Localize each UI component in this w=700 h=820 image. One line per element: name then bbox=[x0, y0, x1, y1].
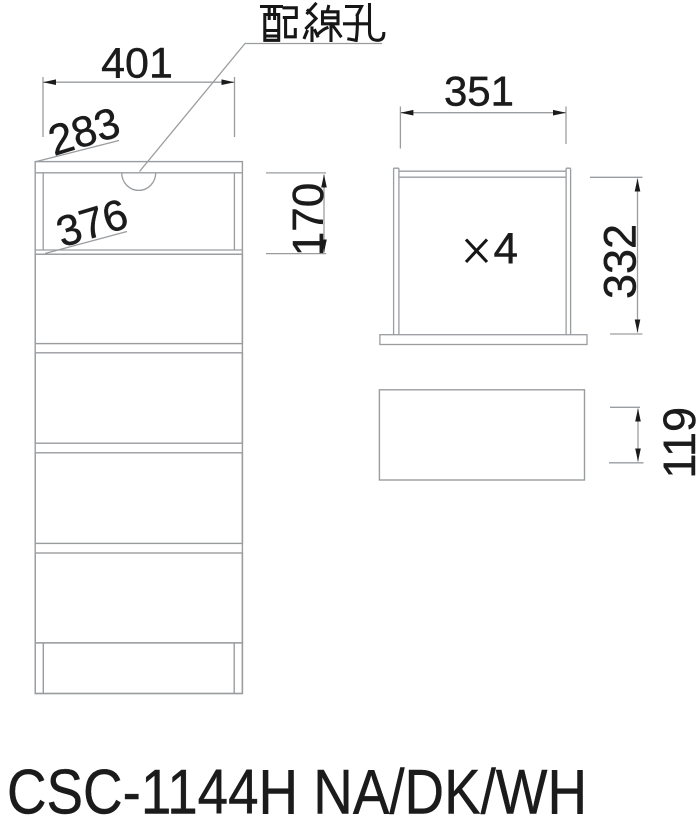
svg-text:401: 401 bbox=[101, 40, 173, 88]
svg-text:4: 4 bbox=[494, 225, 518, 274]
svg-text:351: 351 bbox=[444, 68, 514, 115]
svg-text:332: 332 bbox=[595, 224, 646, 299]
svg-text:170: 170 bbox=[284, 183, 333, 256]
svg-text:CSC-1144H NA/DK/WH: CSC-1144H NA/DK/WH bbox=[7, 758, 587, 820]
svg-text:119: 119 bbox=[654, 407, 700, 479]
